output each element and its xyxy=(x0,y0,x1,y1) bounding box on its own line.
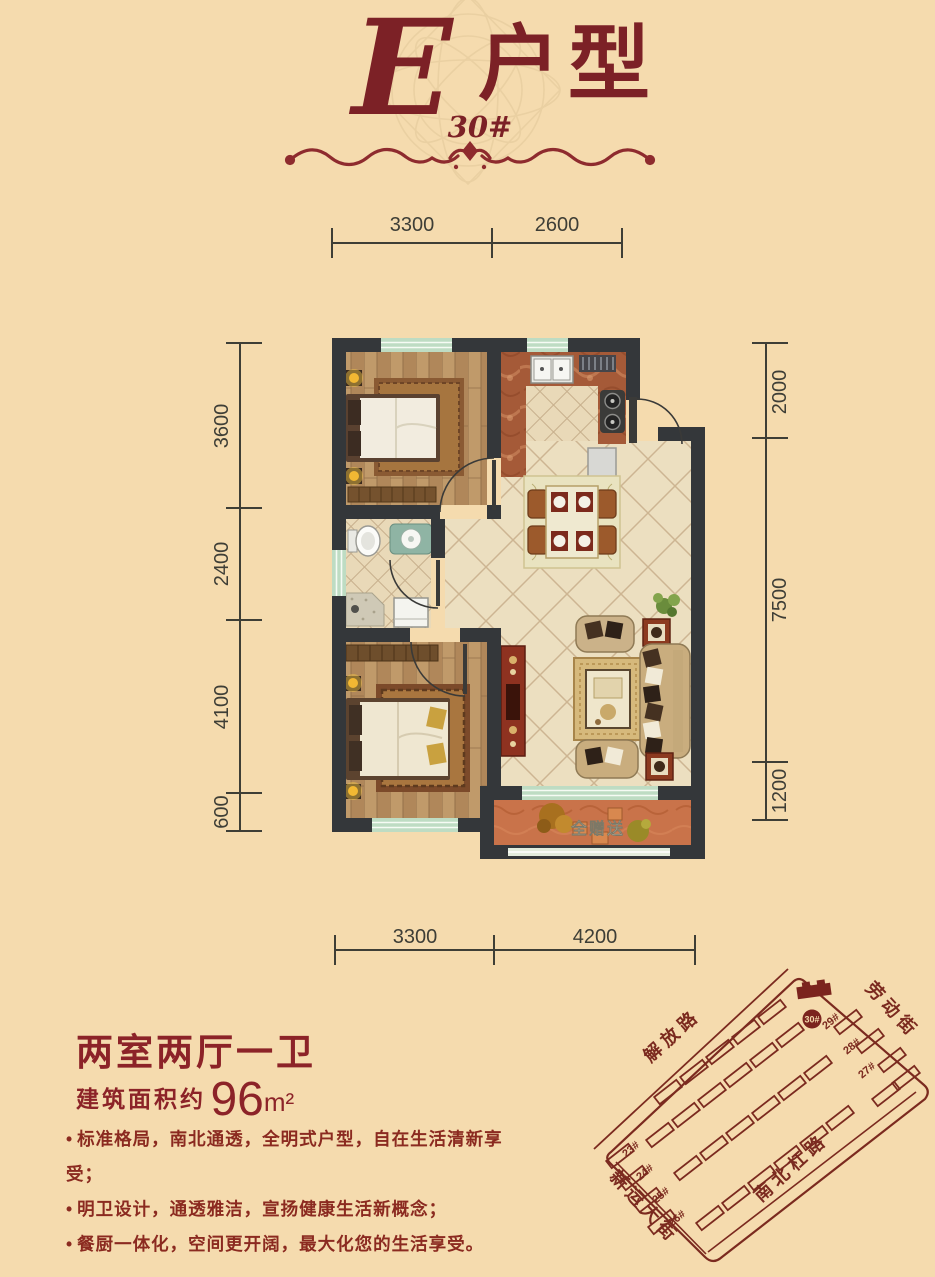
building-icon xyxy=(826,1106,854,1130)
window-icon xyxy=(527,338,568,352)
chair-icon xyxy=(596,526,616,554)
highlight-building-icon xyxy=(796,979,832,1000)
fridge-icon xyxy=(588,448,616,477)
feature-item: 餐厨一体化，空间更开阔，最大化您的生活享受。 xyxy=(66,1227,536,1262)
floor-plan: 全赠送 3300 2600 3300 4200 3600 2400 4100 6… xyxy=(180,195,820,985)
street-laodong: 劳动街 xyxy=(862,977,924,1042)
kitchen-marble-strip xyxy=(501,352,526,477)
svg-text:28#: 28# xyxy=(841,1036,863,1057)
flourish-ornament-icon xyxy=(112,0,823,215)
feature-item: 标准格局，南北通透，全明式户型，自在生活清新享受； xyxy=(66,1122,536,1192)
building-icon xyxy=(722,1186,750,1210)
header-ornament xyxy=(0,0,935,215)
building-icon xyxy=(672,1103,700,1127)
dim-right-2: 7500 xyxy=(769,578,791,623)
chair-icon xyxy=(528,490,548,518)
washer-icon xyxy=(394,598,428,627)
feature-list: 标准格局，南北通透，全明式户型，自在生活清新享受； 明卫设计，通透雅洁，宣扬健康… xyxy=(66,1122,536,1262)
building-icon xyxy=(674,1156,702,1180)
building-icon xyxy=(696,1206,724,1230)
area-value: 96 xyxy=(210,1073,263,1126)
building-icon xyxy=(778,1076,806,1100)
dim-left-1: 3600 xyxy=(211,404,233,449)
building-icon xyxy=(726,1116,754,1140)
dim-top-2: 2600 xyxy=(535,214,580,236)
road-edge-line xyxy=(594,969,788,1149)
armchair-icon xyxy=(576,616,634,652)
dim-bottom-2: 4200 xyxy=(573,926,618,948)
wardrobe-icon xyxy=(346,645,438,661)
layout-title: 两室两厅一卫 xyxy=(76,1022,316,1076)
svg-text:29#: 29# xyxy=(820,1011,842,1032)
building-number: 30# xyxy=(420,110,540,144)
svg-text:23#: 23# xyxy=(620,1139,642,1160)
building-icon xyxy=(872,1082,900,1106)
building-icon xyxy=(724,1063,752,1087)
building-icon xyxy=(776,1023,804,1047)
building-icon xyxy=(646,1123,674,1147)
building-icon xyxy=(680,1060,708,1084)
feature-item: 明卫设计，通透雅洁，宣扬健康生活新概念； xyxy=(66,1192,536,1227)
building-icon xyxy=(698,1083,726,1107)
dim-bottom-1: 3300 xyxy=(393,926,438,948)
dim-left-2: 2400 xyxy=(211,542,233,587)
swirl-divider-icon xyxy=(287,141,654,169)
area-line: 建筑面积约 96m² xyxy=(76,1072,294,1127)
page-title: 户型 xyxy=(478,24,658,106)
dining-set xyxy=(524,476,620,568)
window-icon xyxy=(522,786,658,800)
svg-text:27#: 27# xyxy=(856,1060,878,1081)
building-icon xyxy=(878,1048,906,1072)
flyer-page: { "colors": { "accent": "#7c2126", "back… xyxy=(0,0,935,1277)
highlight-badge-label: 30# xyxy=(804,1015,819,1025)
window-icon xyxy=(332,550,346,596)
area-prefix: 建筑面积约 xyxy=(76,1086,206,1112)
dim-top-1: 3300 xyxy=(390,214,435,236)
window-icon xyxy=(372,818,458,832)
dim-right-1: 2000 xyxy=(769,370,791,415)
area-unit: m² xyxy=(264,1087,294,1117)
building-icon xyxy=(732,1020,760,1044)
chair-icon xyxy=(596,490,616,518)
building-icon xyxy=(752,1096,780,1120)
balcony-rail-icon xyxy=(508,848,670,856)
balcony-label: 全赠送 xyxy=(570,819,625,838)
chair-icon xyxy=(528,526,548,554)
building-icon xyxy=(750,1043,778,1067)
dim-left-4: 600 xyxy=(211,795,233,828)
window-icon xyxy=(381,338,452,352)
building-icon xyxy=(804,1056,832,1080)
building-icon xyxy=(856,1029,884,1053)
dish-rack-icon xyxy=(579,355,616,372)
building-icon xyxy=(654,1080,682,1104)
site-map: 30# 29# 28# 27# 23# 24# 25# 26# 解放路 劳动街 … xyxy=(575,960,935,1277)
building-icon xyxy=(700,1136,728,1160)
dim-left-3: 4100 xyxy=(211,685,233,730)
dim-right-3: 1200 xyxy=(769,769,791,814)
